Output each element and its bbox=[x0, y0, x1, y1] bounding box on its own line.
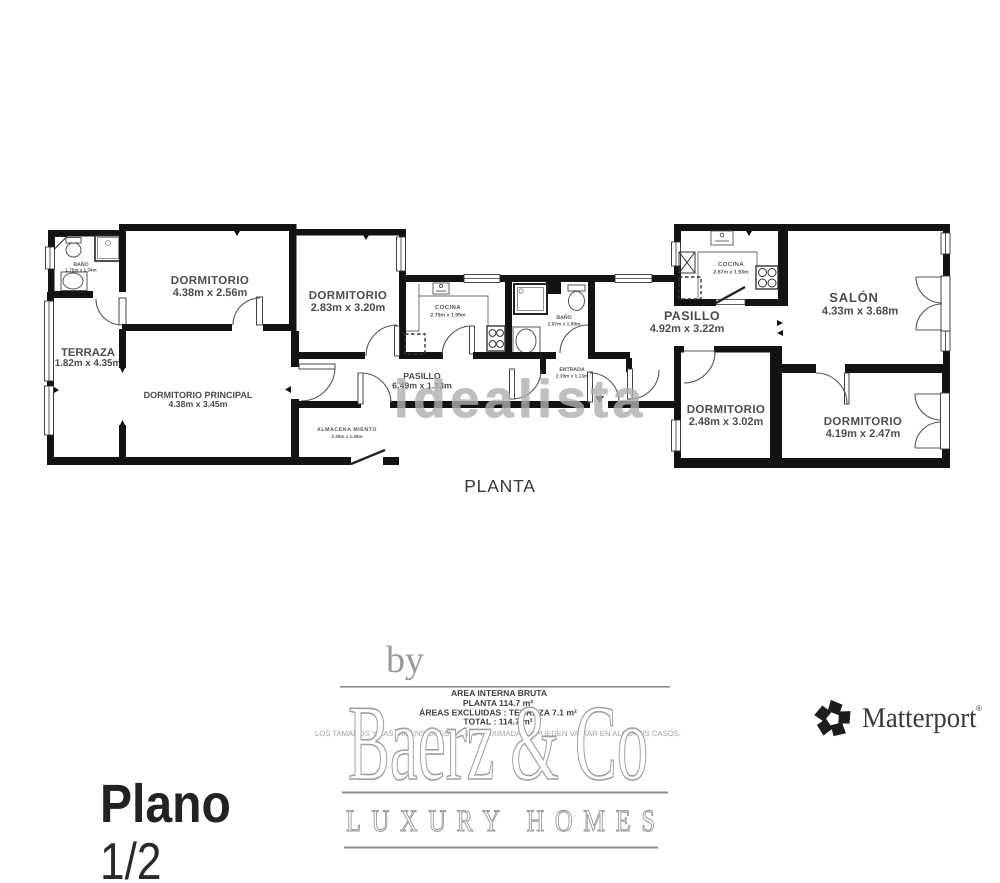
svg-text:2.67m x 1.93m: 2.67m x 1.93m bbox=[713, 270, 749, 276]
svg-text:4.92m x 3.22m: 4.92m x 3.22m bbox=[650, 323, 725, 335]
svg-text:idealista: idealista bbox=[394, 370, 647, 429]
svg-text:4.19m x 2.47m: 4.19m x 2.47m bbox=[826, 428, 901, 440]
svg-text:LUXURY HOMES: LUXURY HOMES bbox=[346, 803, 666, 838]
svg-text:4.38m x 2.56m: 4.38m x 2.56m bbox=[173, 287, 248, 299]
svg-text:4.33m x 3.68m: 4.33m x 3.68m bbox=[822, 306, 899, 318]
svg-text:DORMITORIO: DORMITORIO bbox=[824, 416, 903, 428]
svg-text:1/2: 1/2 bbox=[100, 833, 161, 883]
svg-text:COCINA: COCINA bbox=[718, 261, 744, 268]
svg-text:by: by bbox=[386, 639, 424, 681]
svg-text:Plano: Plano bbox=[100, 774, 231, 834]
svg-text:2.48m x 3.02m: 2.48m x 3.02m bbox=[689, 416, 764, 428]
svg-text:2.49m x 1.49m: 2.49m x 1.49m bbox=[331, 434, 362, 439]
svg-text:2.83m x 3.20m: 2.83m x 3.20m bbox=[311, 302, 386, 314]
svg-text:PLANTA: PLANTA bbox=[464, 476, 536, 496]
svg-text:DORMITORIO: DORMITORIO bbox=[171, 275, 250, 287]
svg-text:1.82m x 4.35m: 1.82m x 4.35m bbox=[55, 358, 122, 369]
svg-text:COCINA: COCINA bbox=[435, 304, 461, 311]
svg-text:2.79m x 1.95m: 2.79m x 1.95m bbox=[430, 313, 466, 319]
svg-text:4.38m x 3.45m: 4.38m x 3.45m bbox=[169, 399, 228, 409]
svg-text:Baerz & Co: Baerz & Co bbox=[348, 684, 648, 803]
svg-text:ALMACENA MIENTO: ALMACENA MIENTO bbox=[317, 427, 377, 433]
svg-text:PASILLO: PASILLO bbox=[664, 309, 720, 323]
svg-text:DORMITORIO: DORMITORIO bbox=[309, 290, 388, 302]
svg-text:2.07m x 1.99m: 2.07m x 1.99m bbox=[548, 322, 581, 328]
svg-text:DORMITORIO: DORMITORIO bbox=[687, 404, 766, 416]
svg-text:SALÓN: SALÓN bbox=[829, 290, 879, 305]
svg-text:®: ® bbox=[976, 704, 982, 713]
svg-text:BAÑO: BAÑO bbox=[556, 314, 571, 321]
svg-text:Matterport: Matterport bbox=[862, 703, 977, 734]
svg-text:1.75m x 1.34m: 1.75m x 1.34m bbox=[65, 268, 96, 273]
